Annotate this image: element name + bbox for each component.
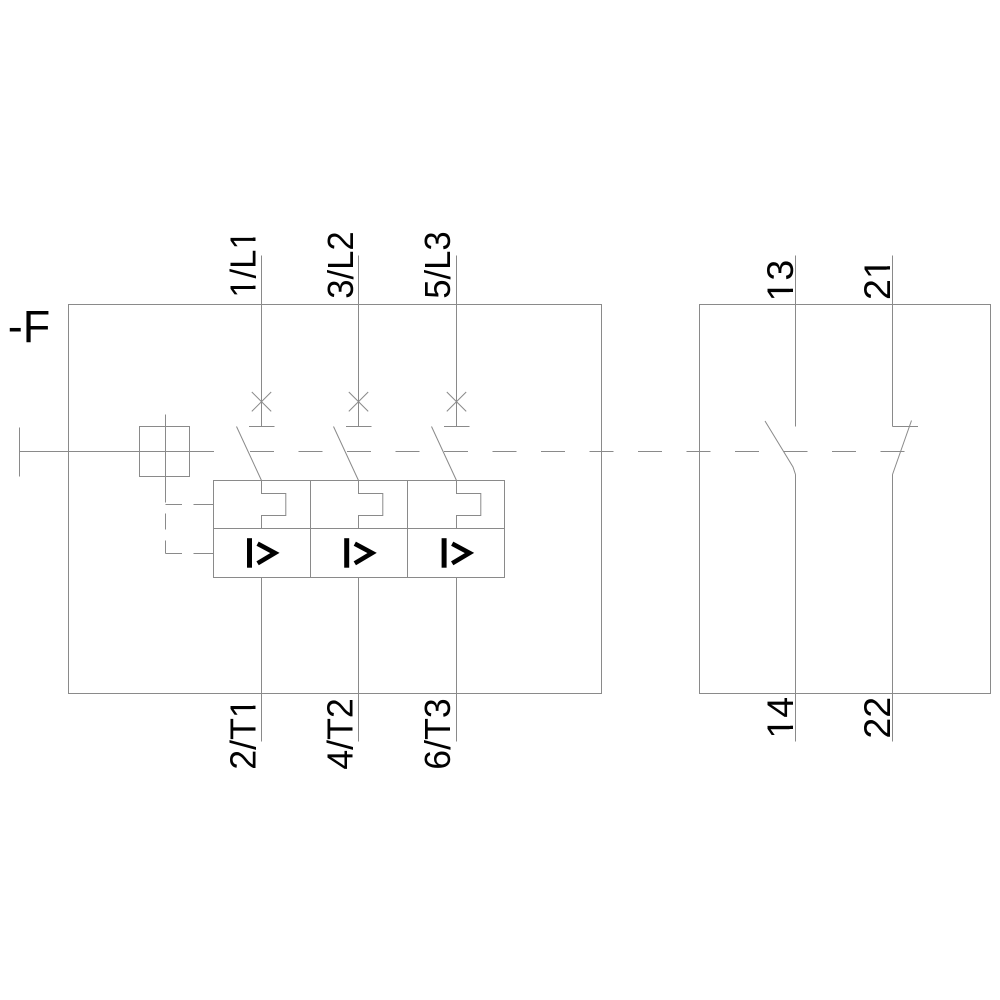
svg-text:5/L3: 5/L3: [417, 231, 458, 299]
svg-text:6/T3: 6/T3: [417, 698, 458, 770]
svg-text:13: 13: [759, 260, 801, 302]
svg-text:21: 21: [856, 258, 898, 300]
svg-text:2/T1: 2/T1: [222, 698, 263, 770]
svg-text:4/T2: 4/T2: [320, 698, 361, 770]
svg-text:3/L2: 3/L2: [320, 231, 361, 299]
svg-text:14: 14: [759, 697, 801, 739]
svg-text:22: 22: [856, 697, 898, 739]
svg-text:1/L1: 1/L1: [223, 230, 264, 298]
svg-text:-F: -F: [8, 301, 50, 352]
